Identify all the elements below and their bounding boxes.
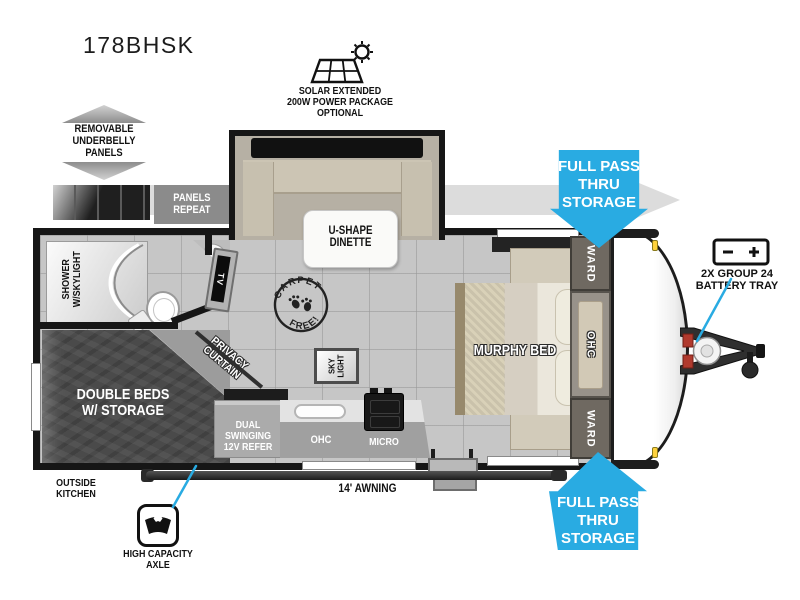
skylight-label: SKY LIGHT: [327, 355, 345, 378]
tv-label: TV: [215, 272, 227, 286]
floorplan-diagram: 178BHSK SOLAR EXTENDED 200W POWER PACKAG…: [0, 0, 800, 600]
ohc-front-cabinet: OHC: [570, 291, 611, 398]
dinette-table: U-SHAPE DINETTE: [303, 210, 398, 268]
axle-label: HIGH CAPACITY AXLE: [117, 549, 199, 571]
underbelly-panels-strip: [53, 185, 150, 220]
dinette-label: U-SHAPE DINETTE: [311, 225, 390, 250]
kitchen-sink: [294, 404, 346, 419]
panels-repeat-badge: PANELS REPEAT: [154, 185, 230, 224]
bathroom-wall-top: [205, 235, 212, 255]
murphy-bench-top: [510, 248, 574, 288]
kitchen-counter: [280, 400, 430, 458]
micro-label: MICRO: [364, 437, 405, 448]
bathroom-wall-bottom: [40, 322, 178, 329]
stove-micro-unit: [364, 393, 404, 431]
awning-bar: [146, 471, 560, 480]
window-bottom-wall: [302, 461, 416, 470]
ohc-front-label: OHC: [585, 331, 597, 358]
dinette-bench-right: [401, 162, 432, 236]
panels-repeat-label: PANELS REPEAT: [173, 193, 210, 217]
underbelly-up-arrow-icon: [62, 105, 146, 123]
double-beds-label: DOUBLE BEDS W/ STORAGE: [58, 387, 187, 419]
paw-print-icon: [288, 292, 314, 316]
trailer-front-cap: [611, 229, 689, 469]
hitch-coupler: [756, 344, 765, 358]
slideout-window: [251, 138, 423, 158]
tongue-jack-wheel: [742, 362, 758, 378]
battery-label: 2X GROUP 24 BATTERY TRAY: [692, 269, 782, 293]
skylight: SKY LIGHT: [314, 348, 359, 384]
shower-label: SHOWER W/SKYLIGHT: [61, 238, 83, 320]
wardrobe-bottom: WARD: [570, 398, 611, 459]
battery-box-1: [683, 334, 693, 347]
ohc-kitchen-label: OHC: [301, 435, 340, 447]
axle-scale-icon: [136, 503, 180, 549]
window-front-bottom: [487, 456, 579, 466]
murphy-bed-label: MURPHY BED: [456, 344, 573, 360]
carpet-free-stamp: CARPET FREE!: [267, 271, 336, 340]
tv-screen: TV: [211, 255, 231, 302]
underbelly-label: REMOVABLE UNDERBELLY PANELS: [62, 124, 147, 159]
solar-panel-icon: [308, 40, 380, 88]
refrigerator-label: DUAL SWINGING 12V REFER: [219, 420, 277, 454]
underbelly-down-arrow-icon: [62, 162, 146, 180]
awning-end-right: [551, 470, 567, 481]
outside-kitchen-label: OUTSIDE KITCHEN: [47, 478, 105, 500]
wardrobe-top-label: WARD: [585, 245, 597, 283]
wardrobe-top: WARD: [570, 236, 611, 291]
murphy-bench-bottom: [510, 412, 574, 450]
battery-box-2: [683, 355, 693, 368]
battery-icon: [712, 237, 770, 267]
page-title: 178BHSK: [83, 32, 195, 59]
dinette-bench-left: [243, 162, 274, 236]
dinette-slideout: U-SHAPE DINETTE: [229, 130, 445, 240]
marker-light-top: [652, 240, 658, 251]
trailer-tongue: [680, 312, 765, 390]
awning-label: 14' AWNING: [327, 482, 408, 495]
wardrobe-bottom-label: WARD: [585, 410, 597, 448]
solar-package-label: SOLAR EXTENDED 200W POWER PACKAGE OPTION…: [279, 86, 401, 120]
cap-trim-bottom: [611, 460, 659, 469]
marker-light-bottom: [652, 447, 658, 458]
outside-kitchen-door: [31, 363, 41, 431]
